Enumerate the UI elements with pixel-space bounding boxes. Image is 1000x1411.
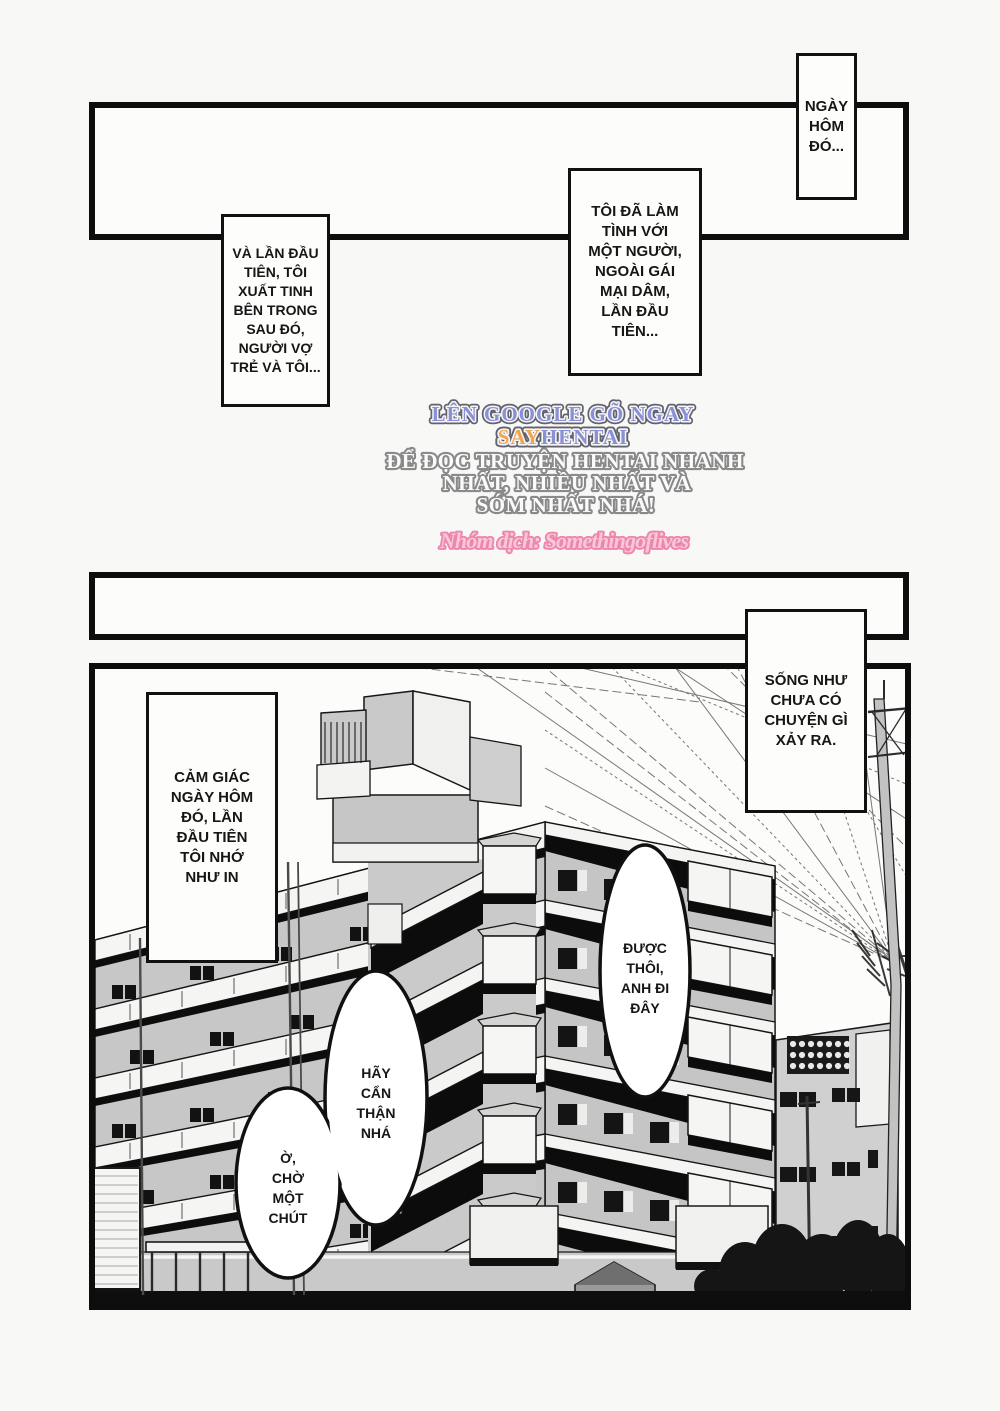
svg-text:ĐỂ ĐỌC TRUYỆN HENTAI NHANH: ĐỂ ĐỌC TRUYỆN HENTAI NHANH [386,449,744,473]
svg-text:LÊN GOOGLE GÕ NGAY: LÊN GOOGLE GÕ NGAY [432,402,695,426]
svg-text:NHẤT, NHIỀU NHẤT VÀ: NHẤT, NHIỀU NHẤT VÀ [443,471,692,495]
svg-text:Nhóm dịch: Somethingoflives: Nhóm dịch: Somethingoflives [439,528,689,553]
svg-text:SỚM NHẤT NHÁ!: SỚM NHẤT NHÁ! [477,493,656,517]
svg-text:SAYHENTAI: SAYHENTAI [498,425,628,449]
